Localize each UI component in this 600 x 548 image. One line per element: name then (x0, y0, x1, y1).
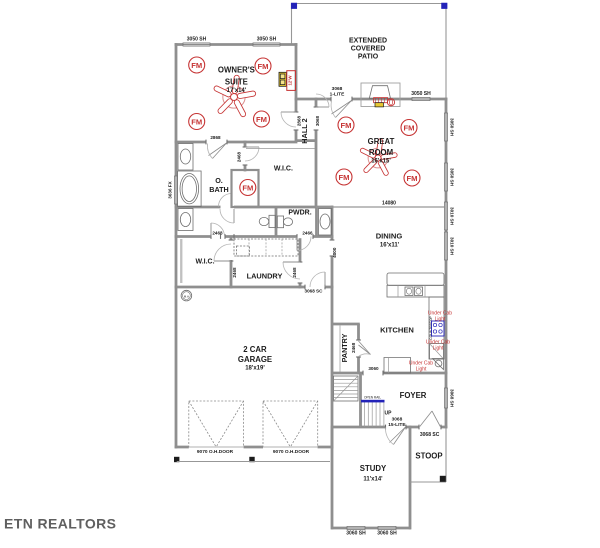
svg-text:3068 SC: 3068 SC (305, 289, 324, 294)
svg-text:BATH: BATH (209, 185, 228, 194)
svg-text:Light: Light (433, 346, 444, 352)
svg-text:GARAGE: GARAGE (238, 355, 272, 364)
svg-text:3010 SH: 3010 SH (449, 207, 454, 226)
svg-text:3636 FX: 3636 FX (168, 180, 173, 198)
svg-text:3050 SH: 3050 SH (449, 118, 454, 137)
svg-text:3060 SH: 3060 SH (377, 531, 397, 537)
svg-text:15-LITE: 15-LITE (388, 422, 406, 428)
svg-text:2 CAR: 2 CAR (243, 345, 267, 354)
svg-text:Light: Light (416, 367, 427, 373)
svg-text:2468: 2468 (292, 267, 297, 278)
svg-text:PWDR.: PWDR. (288, 209, 311, 216)
svg-text:2468: 2468 (232, 267, 237, 278)
svg-text:FM: FM (191, 117, 202, 126)
svg-text:3068 SC: 3068 SC (420, 432, 440, 438)
svg-text:3050 SH: 3050 SH (187, 37, 207, 43)
svg-text:17'x14': 17'x14' (227, 88, 247, 94)
svg-text:2868: 2868 (210, 135, 221, 140)
svg-text:3068 SH: 3068 SH (449, 389, 454, 408)
svg-text:2468: 2468 (212, 230, 223, 235)
svg-text:3010 SH: 3010 SH (449, 237, 454, 256)
svg-text:PANTRY: PANTRY (340, 333, 349, 362)
svg-text:GREAT: GREAT (368, 137, 395, 146)
svg-text:EXTENDED: EXTENDED (349, 38, 387, 45)
svg-text:M.A: M.A (184, 294, 189, 298)
svg-text:18'x19': 18'x19' (245, 366, 265, 372)
svg-text:FM: FM (256, 115, 267, 124)
svg-text:16'x15': 16'x15' (371, 159, 391, 165)
svg-text:2468: 2468 (351, 342, 356, 353)
svg-text:FM: FM (339, 173, 350, 182)
svg-text:STUDY: STUDY (360, 464, 387, 473)
svg-text:OWNER'S: OWNER'S (218, 66, 255, 75)
svg-text:FM: FM (191, 61, 202, 70)
svg-text:11'x14': 11'x14' (363, 477, 383, 483)
svg-text:9070 O.H.DOOR: 9070 O.H.DOOR (273, 449, 310, 455)
svg-text:UP: UP (385, 411, 393, 417)
svg-text:3060 SH: 3060 SH (346, 531, 366, 537)
svg-text:DINING: DINING (376, 232, 403, 241)
svg-text:STOOP: STOOP (415, 452, 442, 461)
svg-text:O.: O. (215, 176, 223, 185)
svg-text:3068: 3068 (315, 115, 320, 126)
svg-text:3060: 3060 (368, 366, 379, 371)
svg-text:16'x11': 16'x11' (380, 243, 400, 249)
svg-text:FOYER: FOYER (400, 391, 427, 400)
svg-text:ROOM: ROOM (369, 148, 393, 157)
svg-text:3068: 3068 (392, 416, 403, 422)
svg-text:2466: 2466 (302, 230, 313, 235)
svg-text:PATIO: PATIO (358, 54, 379, 61)
svg-text:3050 SH: 3050 SH (411, 91, 431, 97)
svg-text:FM: FM (404, 123, 415, 132)
svg-text:Light: Light (435, 317, 446, 323)
svg-text:COVERED: COVERED (351, 46, 386, 53)
svg-text:9070 O.H.DOOR: 9070 O.H.DOOR (197, 449, 234, 455)
svg-text:W.I.C.: W.I.C. (195, 259, 214, 266)
svg-text:2868: 2868 (297, 115, 302, 126)
svg-text:14080: 14080 (382, 201, 396, 207)
svg-text:SUITE: SUITE (225, 78, 248, 87)
svg-text:FM: FM (407, 174, 418, 183)
svg-text:W.I.C.: W.I.C. (274, 166, 293, 173)
svg-text:FM: FM (341, 121, 352, 130)
svg-text:FM: FM (242, 183, 253, 192)
svg-text:OPEN RAIL: OPEN RAIL (364, 396, 381, 400)
svg-text:12'W: 12'W (287, 75, 292, 86)
svg-text:3050 SH: 3050 SH (257, 37, 277, 43)
svg-text:ETN REALTORS: ETN REALTORS (4, 516, 116, 532)
svg-text:4000: 4000 (332, 247, 337, 258)
svg-text:KITCHEN: KITCHEN (380, 326, 414, 335)
svg-text:3050 SH: 3050 SH (449, 168, 454, 187)
svg-text:LAUNDRY: LAUNDRY (247, 272, 283, 281)
svg-text:1-LITE: 1-LITE (330, 92, 345, 98)
svg-text:FM: FM (258, 62, 269, 71)
svg-text:2468: 2468 (237, 151, 242, 162)
svg-text:3068: 3068 (332, 86, 343, 92)
